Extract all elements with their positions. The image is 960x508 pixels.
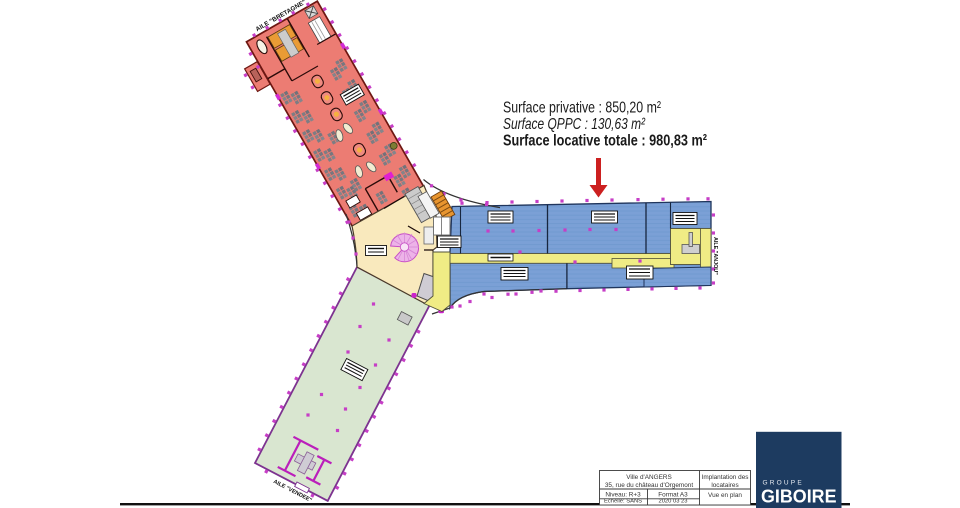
svg-text:Surface QPPC : 130,63 m²: Surface QPPC : 130,63 m²	[503, 116, 645, 133]
svg-text:Vue en plan: Vue en plan	[708, 492, 742, 499]
svg-text:Surface privative : 850,20 m²: Surface privative : 850,20 m²	[503, 100, 662, 117]
svg-text:Ville d'ANGERS: Ville d'ANGERS	[626, 474, 672, 481]
svg-text:GIBOIRE: GIBOIRE	[761, 486, 837, 507]
svg-text:Surface locative totale : 980,: Surface locative totale : 980,83 m²	[503, 133, 707, 150]
svg-text:locataires: locataires	[711, 482, 738, 489]
svg-text:Echelle: SANS: Echelle: SANS	[604, 498, 642, 504]
svg-text:AILE "ANJOU": AILE "ANJOU"	[712, 237, 718, 275]
svg-text:Format A3: Format A3	[658, 491, 688, 498]
svg-text:2020 03 23: 2020 03 23	[658, 498, 687, 504]
svg-text:Niveau: R+3: Niveau: R+3	[605, 491, 641, 498]
svg-text:35, rue du château d'Orgemont: 35, rue du château d'Orgemont	[605, 482, 693, 489]
svg-text:Implantation des: Implantation des	[702, 474, 749, 481]
